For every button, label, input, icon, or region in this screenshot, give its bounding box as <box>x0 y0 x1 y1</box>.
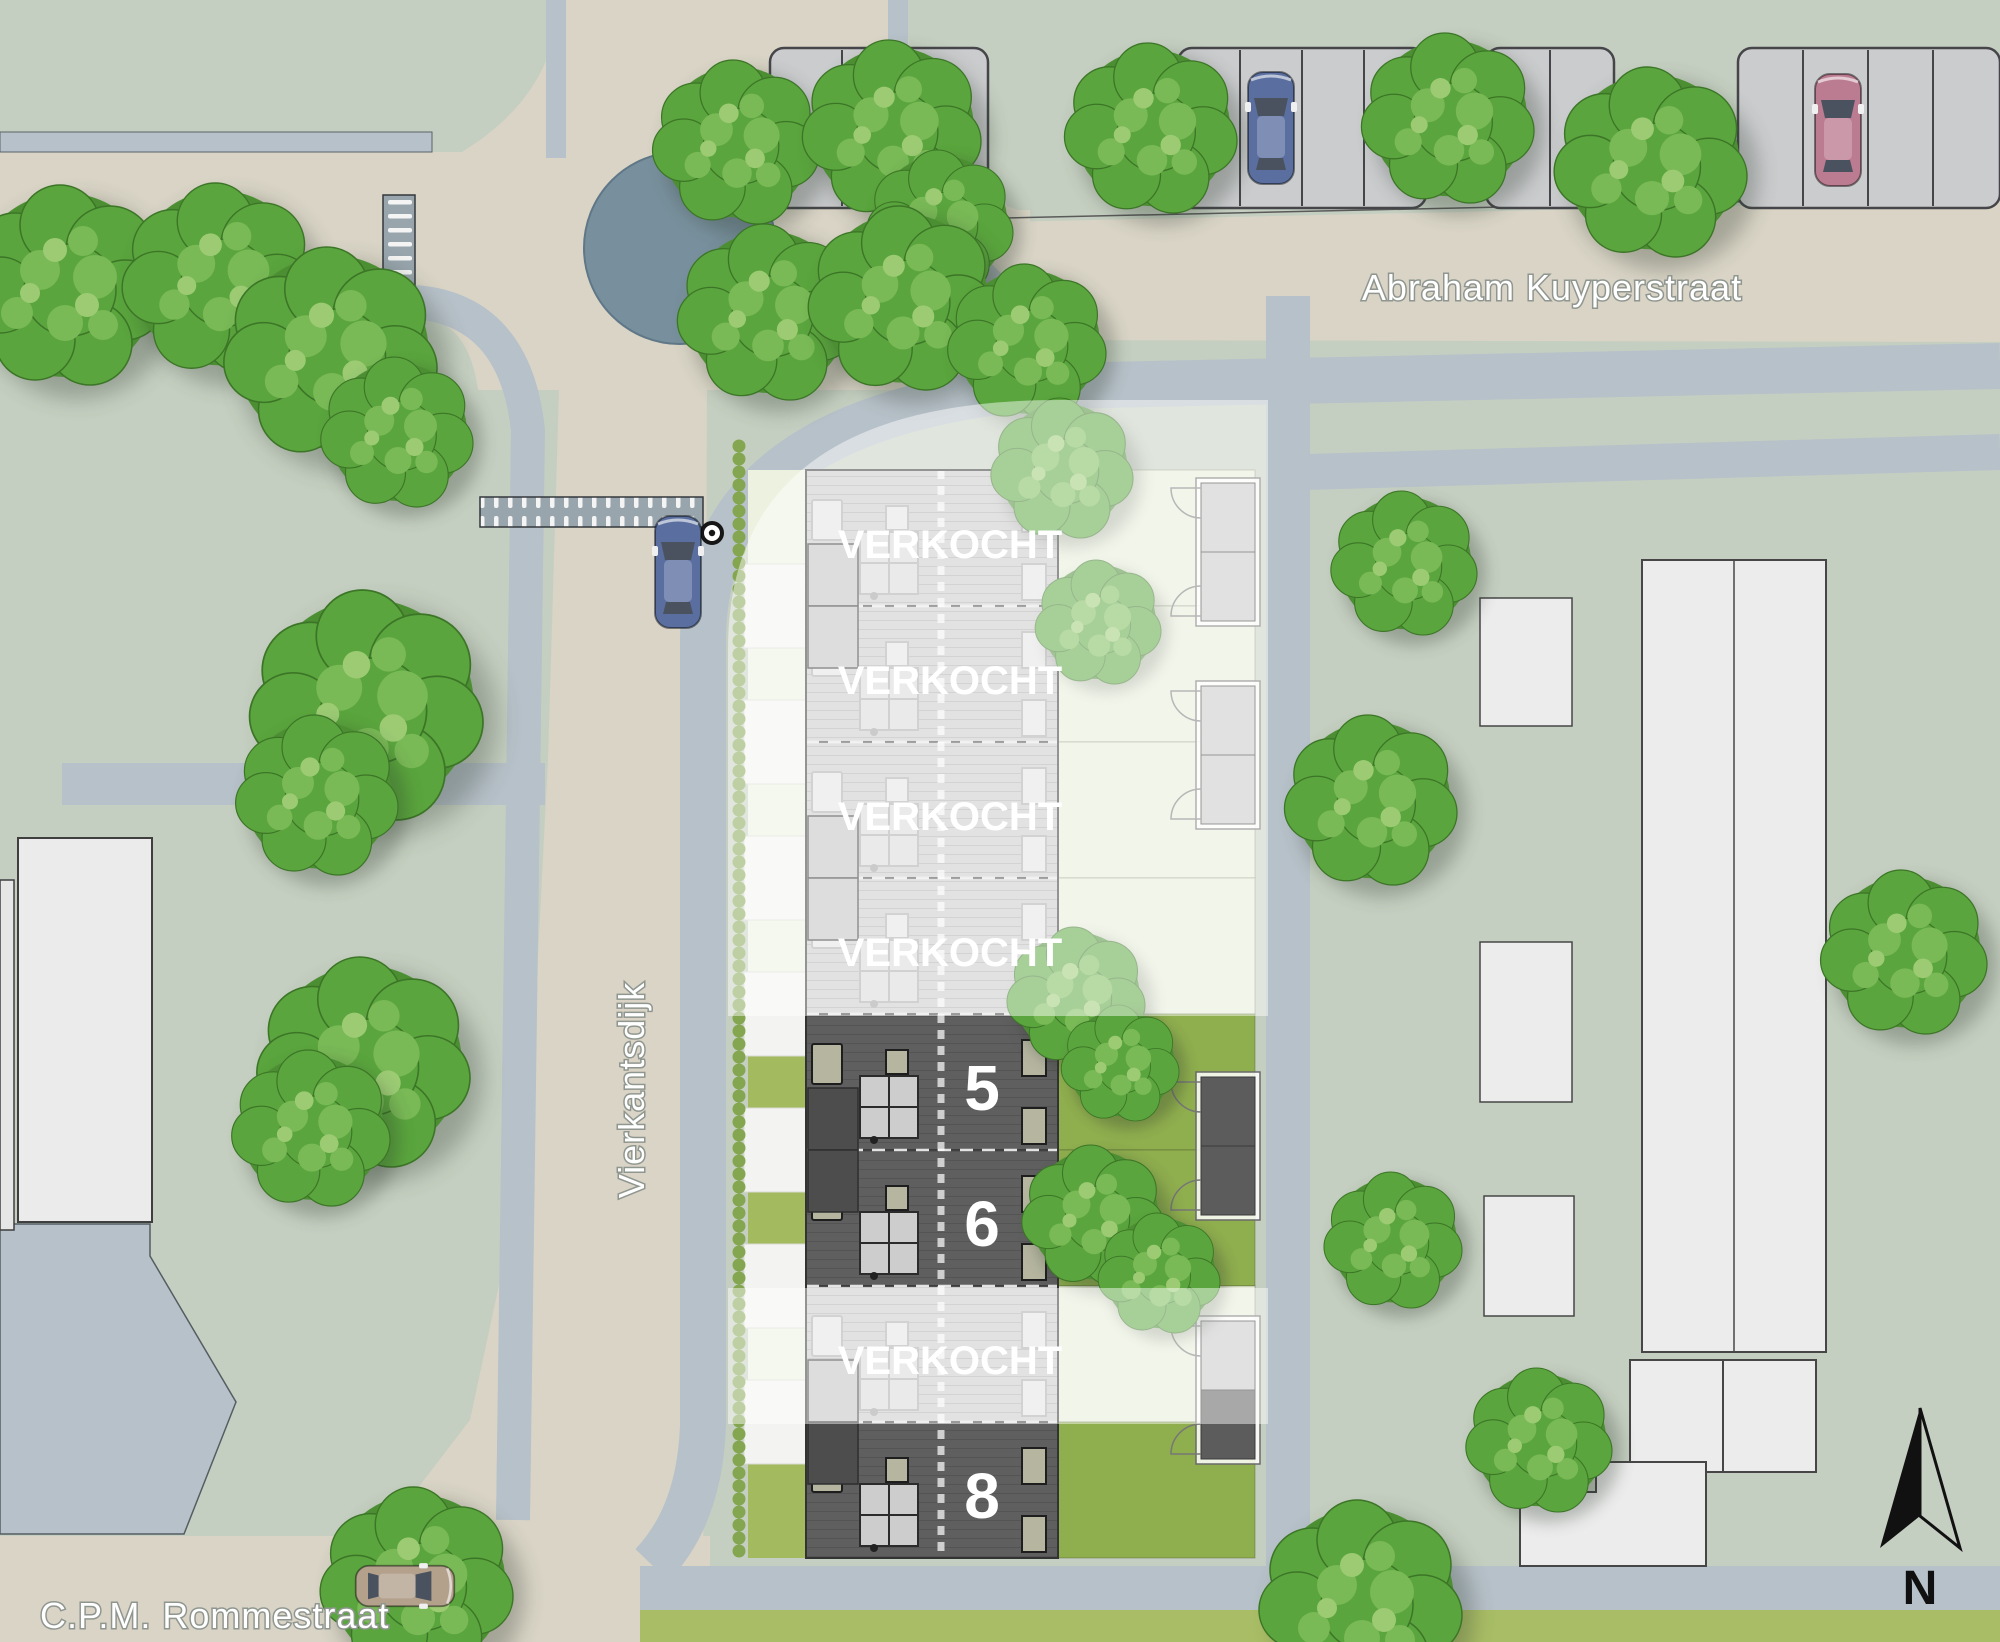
plot-label-4[interactable]: VERKOCHT <box>838 931 1062 975</box>
plot-label-3[interactable]: VERKOCHT <box>838 795 1062 839</box>
plot-label-6[interactable]: 6 <box>964 1188 1000 1260</box>
plot-label-7[interactable]: VERKOCHT <box>838 1339 1062 1383</box>
plot-label-5[interactable]: 5 <box>964 1052 1000 1124</box>
street-label-abraham-kuyperstraat: Abraham Kuyperstraat <box>1362 267 1742 308</box>
plot-label-2[interactable]: VERKOCHT <box>838 659 1062 703</box>
car-icon <box>1245 72 1297 184</box>
car-icon <box>652 516 704 628</box>
north-label: N <box>1903 1562 1938 1615</box>
site-plan-canvas: VERKOCHTVERKOCHTVERKOCHTVERKOCHT56VERKOC… <box>0 0 2000 1642</box>
existing-buildings-west <box>0 838 152 1230</box>
plot-label-8[interactable]: 8 <box>964 1460 1000 1532</box>
street-label-cpm-rommestraat: C.P.M. Rommestraat <box>40 1595 389 1636</box>
street-sign-marker <box>702 523 722 543</box>
car-icon <box>1812 74 1864 186</box>
site-plan: VERKOCHTVERKOCHTVERKOCHTVERKOCHT56VERKOC… <box>0 0 2000 1642</box>
plot-label-1[interactable]: VERKOCHT <box>838 523 1062 567</box>
street-label-vierkantsdijk: Vierkantsdijk <box>611 982 652 1198</box>
